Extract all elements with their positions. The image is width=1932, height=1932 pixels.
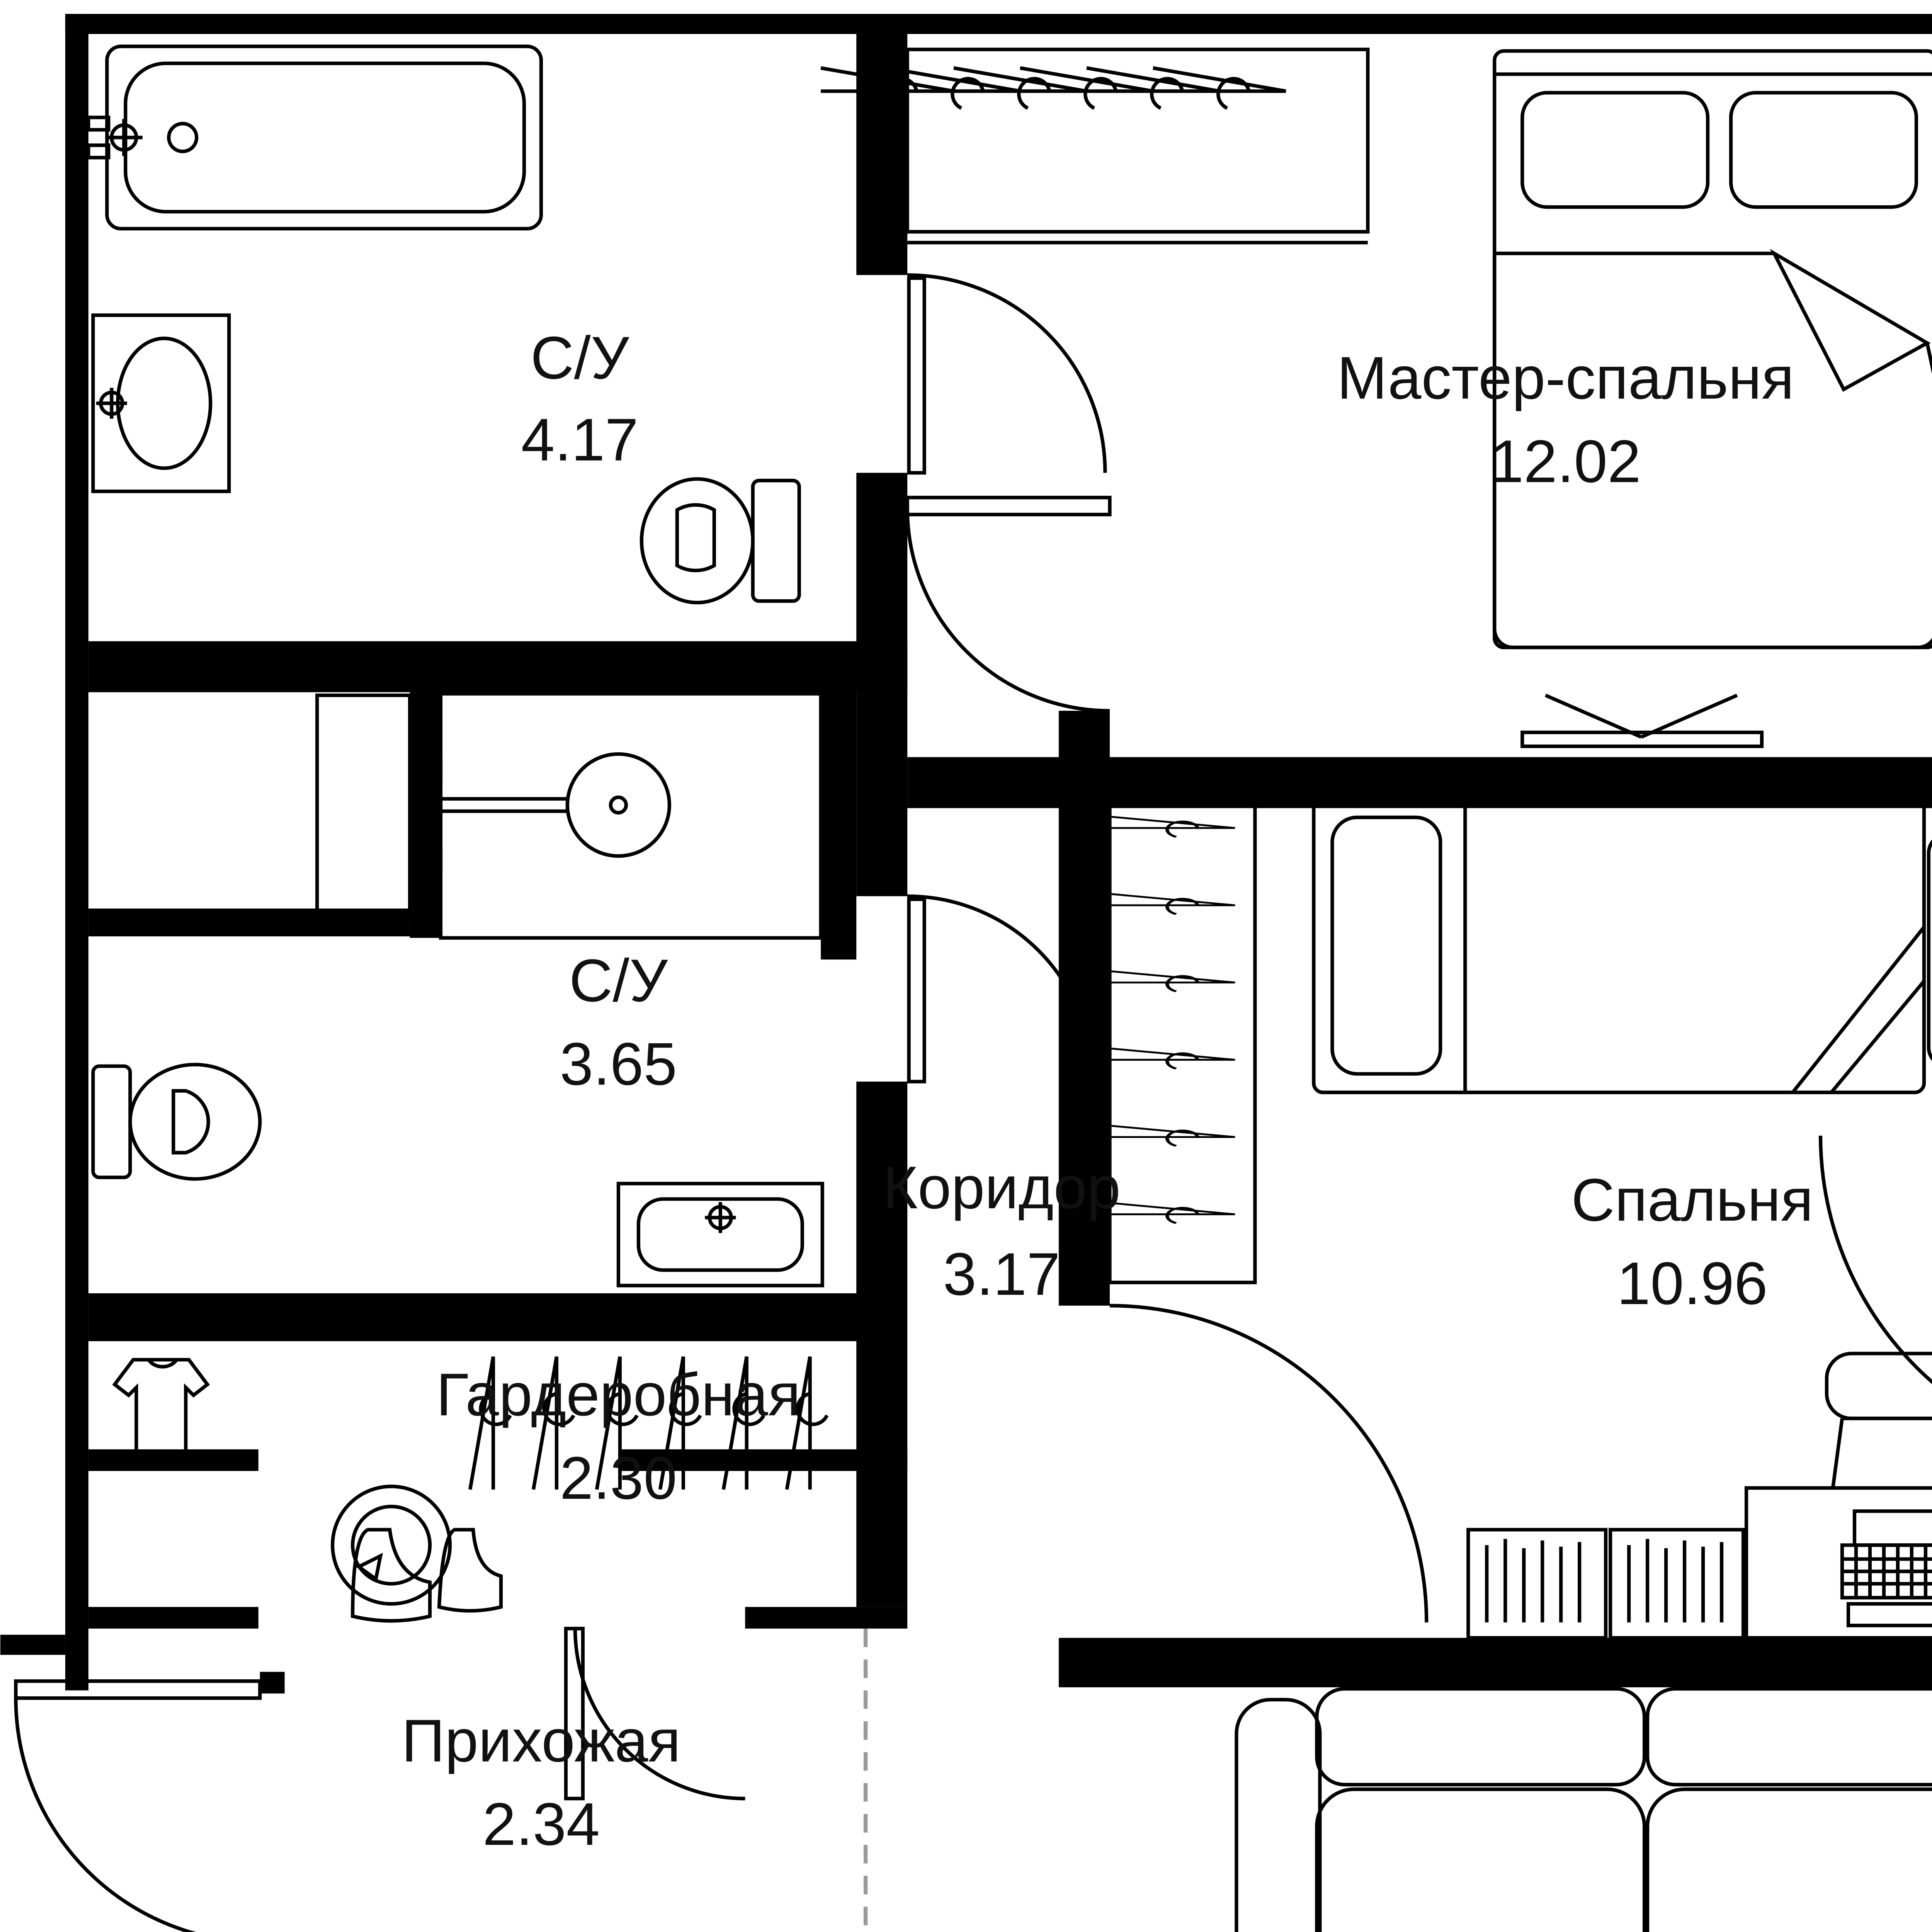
door-arc-icon (907, 509, 1110, 711)
room-label: Прихожая (401, 1708, 681, 1775)
area-label: 10.96 (1617, 1250, 1767, 1317)
room-label: С/У (531, 325, 629, 392)
desk (1747, 1488, 1932, 1638)
area-label: 12.02 (1490, 428, 1641, 495)
faucet-icon (88, 117, 143, 158)
pillow-icon (1731, 93, 1917, 207)
area-label: 2.30 (560, 1445, 677, 1512)
cabinet (1929, 834, 1932, 1066)
living-balcony-door-arc (1816, 1700, 1932, 1932)
sofa-icon (1236, 1689, 1932, 1932)
room-label: Гардеробная (436, 1361, 801, 1429)
laptop-icon (1842, 1511, 1932, 1626)
bedroom-door-arc (1110, 1306, 1427, 1622)
area-label: 2.34 (483, 1791, 600, 1858)
area-label: 4.17 (521, 406, 639, 474)
shower-icon (412, 694, 821, 938)
room-label: Мастер-спальня (1337, 345, 1794, 412)
sink-icon (618, 1184, 822, 1286)
room-label: С/У (569, 947, 668, 1014)
tv-icon (1522, 695, 1762, 746)
door-arc-icon (907, 275, 1105, 473)
walls (0, 14, 1932, 1932)
shaft (317, 695, 410, 912)
toilet-icon (93, 1065, 260, 1179)
room-label: Коридор (883, 1154, 1121, 1221)
room-label: Спальня (1571, 1167, 1813, 1234)
sink-icon (93, 315, 229, 492)
zone-dashed-line (866, 1629, 1077, 1932)
master-bedroom-door (907, 498, 1110, 711)
shirt-icon (115, 1360, 207, 1462)
floor-plan: С/У 4.17 Мастер-спальня 12.02 С/У 3.65 К… (0, 0, 1932, 1932)
bed-icon (1314, 799, 1924, 1092)
entrance-door (16, 1681, 260, 1932)
bookshelf-icon (1468, 1530, 1743, 1638)
wardrobe (1102, 803, 1255, 1282)
toilet-icon (641, 479, 799, 603)
bathroom-door (907, 275, 1105, 473)
pillow-icon (1522, 93, 1708, 207)
pillow-icon (1332, 817, 1440, 1074)
bathtub-icon (88, 46, 541, 229)
area-label: 3.65 (560, 1031, 677, 1098)
office-chair (1827, 1354, 1932, 1488)
hanger-icon (1102, 816, 1235, 1223)
area-label: 3.17 (943, 1241, 1060, 1308)
door-arc-icon (16, 1698, 260, 1932)
